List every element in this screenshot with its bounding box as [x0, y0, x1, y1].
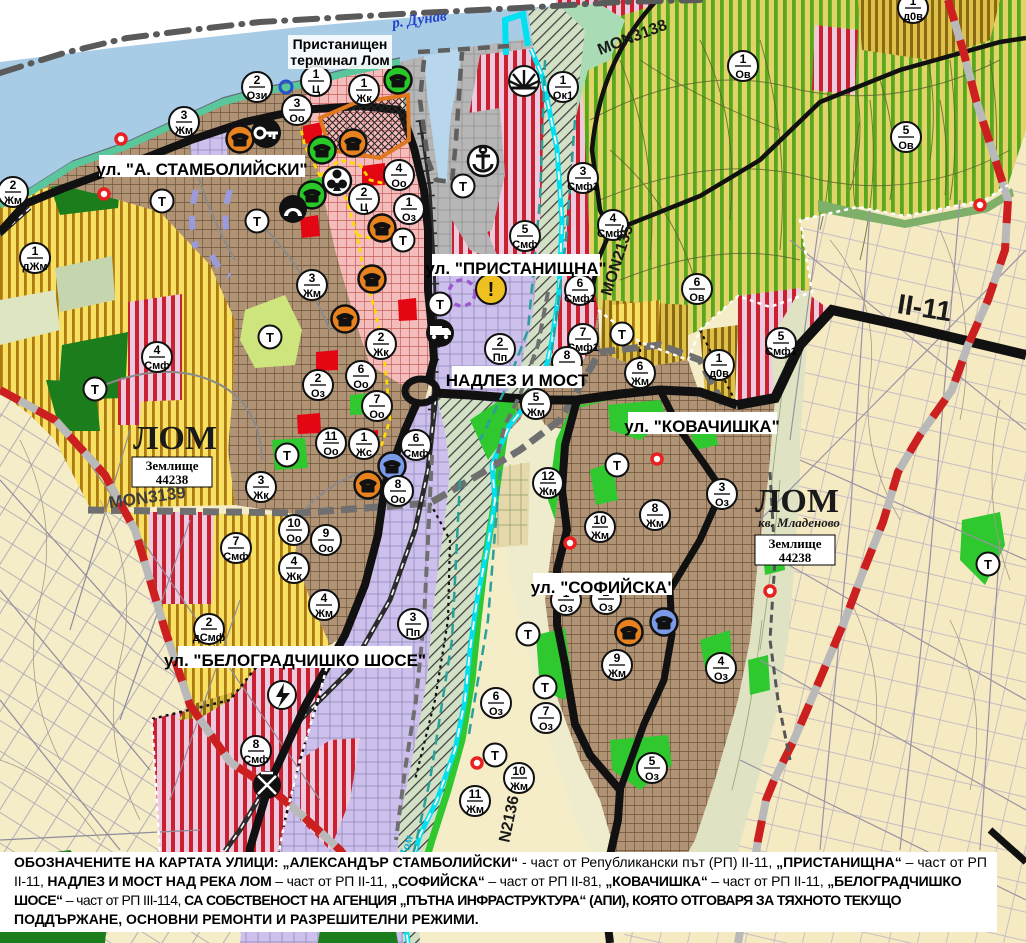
svg-text:6: 6: [694, 275, 701, 289]
svg-text:2: 2: [10, 178, 17, 192]
svg-text:Т: Т: [283, 448, 291, 463]
svg-text:1: 1: [361, 430, 368, 444]
svg-text:2: 2: [361, 185, 368, 199]
svg-text:1: 1: [361, 76, 368, 90]
svg-text:Жм: Жм: [526, 407, 545, 419]
svg-text:Пп: Пп: [493, 352, 508, 364]
svg-text:д0в: д0в: [903, 11, 923, 23]
svg-text:Оо: Оо: [318, 543, 334, 555]
svg-text:Жм: Жм: [607, 668, 626, 680]
svg-text:Оз: Оз: [599, 602, 614, 614]
svg-text:Т: Т: [399, 233, 407, 248]
svg-text:Оо: Оо: [353, 379, 369, 391]
svg-text:7: 7: [580, 325, 587, 339]
svg-text:9: 9: [614, 651, 621, 665]
svg-text:кв. Младеново: кв. Младеново: [758, 515, 840, 530]
svg-text:Т: Т: [459, 179, 467, 194]
svg-text:Т: Т: [491, 748, 499, 763]
svg-text:1: 1: [313, 67, 320, 81]
svg-text:6: 6: [493, 689, 500, 703]
svg-text:10: 10: [512, 764, 526, 778]
svg-text:Жм: Жм: [630, 376, 649, 388]
svg-text:Смф: Смф: [403, 448, 429, 460]
svg-text:Смф: Смф: [243, 754, 269, 766]
svg-text:ул. "СОФИЙСКА": ул. "СОФИЙСКА": [531, 578, 676, 597]
svg-text:1: 1: [32, 244, 39, 258]
svg-text:Пп: Пп: [406, 627, 421, 639]
svg-text:11: 11: [325, 429, 338, 443]
svg-text:3: 3: [181, 108, 188, 122]
svg-text:Жм: Жм: [314, 608, 333, 620]
svg-text:5: 5: [649, 754, 656, 768]
svg-text:3: 3: [719, 480, 726, 494]
svg-text:терминал Лом: терминал Лом: [290, 52, 390, 68]
svg-text:1: 1: [560, 73, 567, 87]
svg-text:Т: Т: [613, 458, 621, 473]
svg-text:Жм: Жм: [645, 518, 664, 530]
svg-text:5: 5: [903, 123, 910, 137]
svg-text:Жк: Жк: [252, 490, 269, 502]
svg-text:Жм: Жм: [538, 486, 557, 498]
svg-text:Ц: Ц: [312, 84, 320, 96]
svg-text:Оз: Оз: [559, 603, 574, 615]
svg-text:8: 8: [395, 477, 402, 491]
svg-text:ул. "ПРИСТАНИЩНА": ул. "ПРИСТАНИЩНА": [425, 259, 606, 278]
svg-text:Т: Т: [984, 557, 992, 572]
svg-text:Жм: Жм: [302, 288, 321, 300]
svg-text:Т: Т: [541, 680, 549, 695]
svg-text:Ов: Ов: [689, 292, 705, 304]
svg-text:7: 7: [233, 534, 240, 548]
svg-text:10: 10: [287, 516, 301, 530]
svg-text:5: 5: [533, 390, 540, 404]
svg-text:6: 6: [358, 362, 365, 376]
svg-text:5: 5: [522, 222, 529, 236]
svg-text:3: 3: [410, 610, 417, 624]
svg-text:4: 4: [154, 343, 161, 357]
svg-text:8: 8: [652, 501, 659, 515]
svg-text:Т: Т: [524, 627, 532, 642]
svg-text:Ов: Ов: [735, 69, 751, 81]
svg-text:Оз: Оз: [645, 771, 660, 783]
svg-text:Жс: Жс: [355, 447, 372, 459]
svg-text:10: 10: [593, 513, 607, 527]
svg-text:Жк: Жк: [285, 571, 302, 583]
svg-text:8: 8: [253, 737, 260, 751]
svg-text:2: 2: [315, 371, 322, 385]
svg-text:3: 3: [580, 164, 587, 178]
svg-text:Оо: Оо: [390, 494, 406, 506]
svg-text:Смф: Смф: [144, 360, 170, 372]
svg-text:Жм: Жм: [465, 804, 484, 816]
svg-text:Оз: Оз: [714, 671, 729, 683]
svg-text:Землище: Землище: [768, 536, 821, 551]
svg-text:6: 6: [637, 359, 644, 373]
svg-text:5: 5: [778, 329, 785, 343]
svg-text:4: 4: [718, 654, 725, 668]
svg-text:4: 4: [396, 161, 403, 175]
svg-text:3: 3: [258, 473, 265, 487]
svg-text:7: 7: [374, 392, 381, 406]
svg-text:1: 1: [406, 195, 413, 209]
svg-text:!: !: [488, 279, 495, 301]
svg-text:4: 4: [321, 591, 328, 605]
svg-text:Т: Т: [158, 194, 166, 209]
svg-text:2: 2: [254, 73, 261, 87]
svg-text:Оз: Оз: [402, 212, 417, 224]
svg-text:Жм: Жм: [509, 781, 528, 793]
svg-text:2: 2: [378, 330, 385, 344]
svg-text:Оо: Оо: [323, 446, 339, 458]
svg-text:дЖм: дЖм: [22, 261, 47, 273]
svg-text:Жк: Жк: [372, 347, 389, 359]
svg-text:2: 2: [497, 335, 504, 349]
svg-text:Оо: Оо: [391, 178, 407, 190]
svg-text:6: 6: [577, 276, 584, 290]
svg-text:дСмф: дСмф: [193, 632, 226, 644]
svg-text:Ов: Ов: [898, 140, 914, 152]
svg-text:Землище: Землище: [145, 458, 198, 473]
svg-text:2: 2: [206, 615, 213, 629]
svg-text:НАДЛЕЗ И МОСТ: НАДЛЕЗ И МОСТ: [446, 371, 589, 390]
svg-text:Смф1: Смф1: [567, 181, 599, 193]
svg-text:Т: Т: [253, 214, 261, 229]
svg-text:11: 11: [469, 787, 482, 801]
svg-text:Ок1: Ок1: [553, 90, 573, 102]
svg-text:6: 6: [413, 431, 420, 445]
svg-text:Ц: Ц: [360, 202, 368, 214]
svg-text:7: 7: [543, 704, 550, 718]
svg-text:ул. "БЕЛОГРАДЧИШКО ШОСЕ": ул. "БЕЛОГРАДЧИШКО ШОСЕ": [164, 651, 426, 670]
svg-text:Пристанищен: Пристанищен: [293, 36, 388, 52]
svg-text:Ози: Ози: [247, 90, 268, 102]
svg-text:9: 9: [323, 526, 330, 540]
svg-text:ул. "КОВАЧИШКА": ул. "КОВАЧИШКА": [624, 417, 780, 436]
svg-text:Оз: Оз: [715, 497, 730, 509]
svg-text:Оо: Оо: [289, 113, 305, 125]
svg-text:д0в: д0в: [709, 368, 729, 380]
svg-text:Т: Т: [618, 327, 626, 342]
svg-text:ЛОМ: ЛОМ: [133, 420, 217, 457]
svg-text:Оо: Оо: [369, 409, 385, 421]
svg-text:Оз: Оз: [539, 721, 554, 733]
svg-text:Оо: Оо: [286, 533, 302, 545]
svg-text:Оз: Оз: [489, 706, 504, 718]
svg-text:Жк: Жк: [355, 93, 372, 105]
svg-text:1: 1: [740, 52, 747, 66]
svg-text:12: 12: [541, 469, 555, 483]
svg-text:4: 4: [610, 211, 617, 225]
svg-text:Жм: Жм: [3, 195, 22, 207]
svg-text:3: 3: [294, 96, 301, 110]
svg-text:Смф1: Смф1: [564, 293, 596, 305]
svg-text:Оз: Оз: [311, 388, 326, 400]
svg-text:Жм: Жм: [590, 530, 609, 542]
svg-text:8: 8: [564, 348, 571, 362]
svg-text:ул. "А. СТАМБОЛИЙСКИ": ул. "А. СТАМБОЛИЙСКИ": [96, 160, 307, 179]
svg-text:44238: 44238: [779, 550, 812, 565]
svg-text:4: 4: [291, 554, 298, 568]
svg-text:Т: Т: [91, 382, 99, 397]
svg-text:Смф: Смф: [223, 551, 249, 563]
svg-text:1: 1: [910, 0, 917, 8]
svg-text:Смф1: Смф1: [765, 346, 797, 358]
svg-text:Т: Т: [436, 297, 444, 312]
svg-text:Смф: Смф: [512, 239, 538, 251]
svg-text:3: 3: [309, 271, 316, 285]
svg-text:1: 1: [716, 351, 723, 365]
svg-text:Жм: Жм: [174, 125, 193, 137]
svg-text:Т: Т: [266, 330, 274, 345]
